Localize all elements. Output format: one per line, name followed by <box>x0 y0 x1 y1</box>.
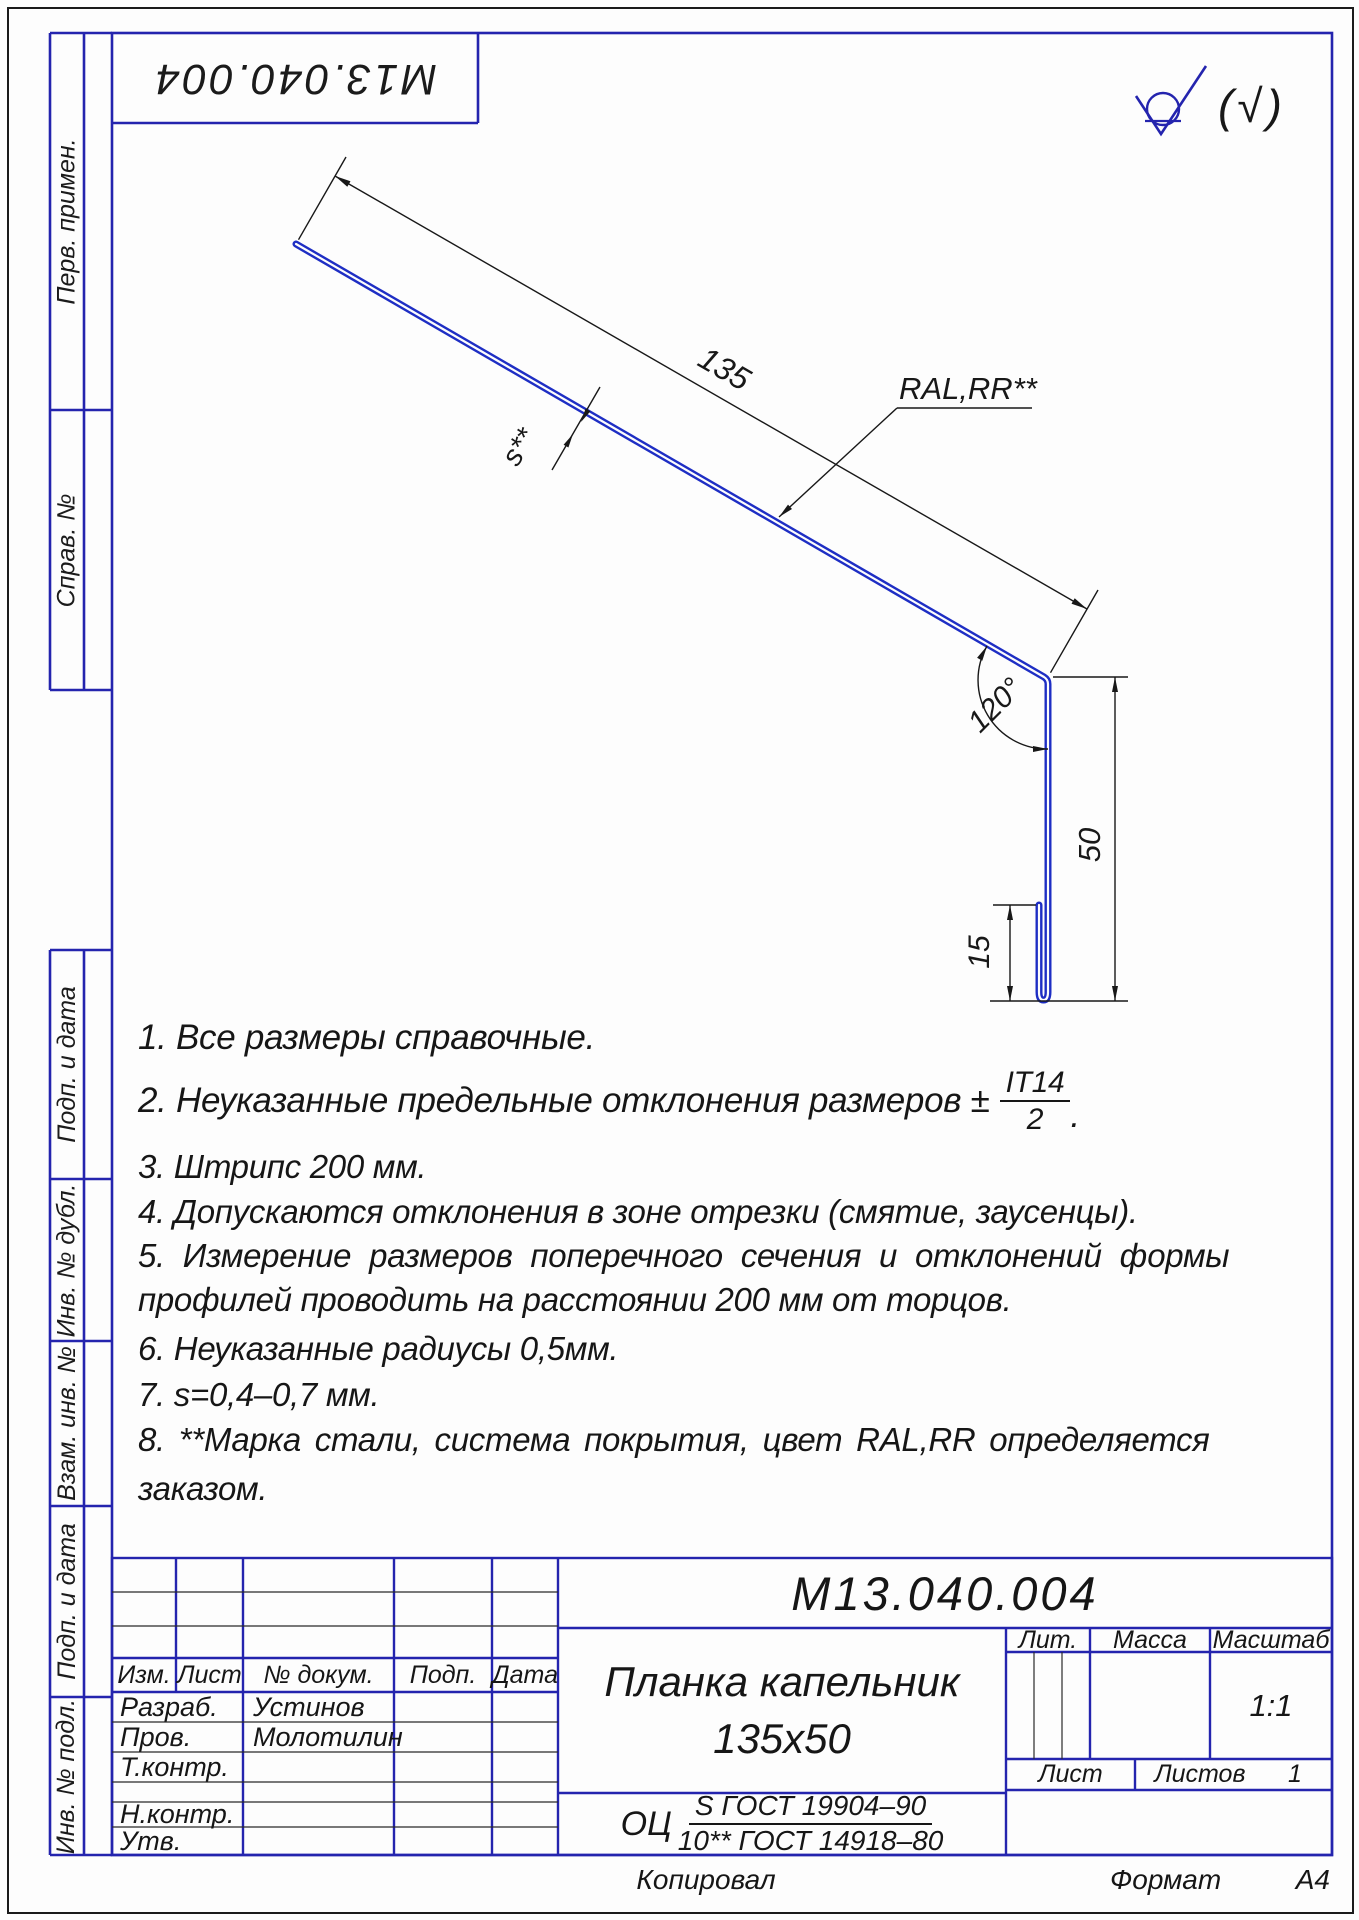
margin-label-podp-data-2: Подп. и дата <box>50 1506 84 1697</box>
tb-header-docnum: № докум. <box>243 1658 394 1692</box>
dimension-thickness-s: s** <box>496 387 600 471</box>
margin-label-sprav-no: Справ. № <box>50 410 84 690</box>
note-3: 3. Штрипс 200 мм. <box>138 1148 1098 1186</box>
part-profile <box>296 244 1048 1000</box>
tb-role-nkontr: Н.контр. <box>114 1802 242 1827</box>
tb-mass-label: Масса <box>1090 1628 1210 1652</box>
dim-thickness-text: s** <box>496 422 544 472</box>
dim-angle-text: 120° <box>962 672 1029 739</box>
tb-name-prov: Молотилин <box>247 1722 393 1752</box>
dim-hem-text: 15 <box>963 935 996 969</box>
tb-role-razrab: Разраб. <box>114 1692 242 1722</box>
margin-label-inv-podl: Инв. № подл. <box>50 1697 84 1855</box>
coating-leader: RAL,RR** <box>779 371 1038 517</box>
tb-role-prov: Пров. <box>114 1722 242 1752</box>
tb-header-izm: Изм. <box>112 1658 176 1692</box>
footer-copied: Копировал <box>560 1858 852 1902</box>
drawing-sheet: 135 s** RAL,RR** 120° 50 <box>0 0 1359 1920</box>
tb-scale-value: 1:1 <box>1210 1652 1332 1759</box>
dimension-angle-120: 120° <box>962 646 1048 752</box>
tb-header-list: Лист <box>176 1658 243 1692</box>
tb-name-razrab: Устинов <box>247 1692 393 1722</box>
footer-format: Формат А4 <box>1100 1858 1340 1902</box>
tb-lit-label: Лит. <box>1006 1628 1090 1652</box>
tb-part-name: Планка капельник 135х50 <box>558 1628 1006 1793</box>
tb-sheets-value: 1 <box>1270 1759 1320 1790</box>
note-1: 1. Все размеры справочные. <box>138 1018 1098 1058</box>
note-8-line1: 8. **Марка стали, система покрытия, цвет… <box>138 1421 1098 1459</box>
dimension-length-135: 135 <box>299 157 1099 673</box>
coating-label-text: RAL,RR** <box>899 371 1038 406</box>
note-2: 2. Неуказанные предельные отклонения раз… <box>138 1066 1098 1136</box>
note-7: 7. s=0,4–0,7 мм. <box>138 1376 1098 1414</box>
dimension-hem-15: 15 <box>963 905 1036 1001</box>
surface-finish-icon <box>1136 66 1206 134</box>
margin-label-vzam-inv: Взам. инв. № <box>50 1341 84 1506</box>
tb-role-utv: Утв. <box>114 1827 242 1855</box>
tb-role-tkontr: Т.контр. <box>114 1752 242 1782</box>
top-stamp-number: М13.040.004 <box>112 33 478 123</box>
tb-header-podp: Подп. <box>394 1658 492 1692</box>
tb-scale-label: Масштаб <box>1210 1628 1332 1652</box>
note-6: 6. Неуказанные радиусы 0,5мм. <box>138 1330 1098 1368</box>
margin-label-podp-data-1: Подп. и дата <box>50 950 84 1179</box>
tb-header-data: Дата <box>492 1658 558 1692</box>
note-2-fraction: IT14 2 <box>1000 1066 1071 1136</box>
tb-material: ОЦ S ГОСТ 19904–90 10** ГОСТ 14918–80 <box>558 1793 1006 1855</box>
surface-finish-bracket: (√) <box>1218 80 1286 132</box>
dim-height-text: 50 <box>1072 828 1107 862</box>
tb-sheet-label: Лист <box>1006 1759 1135 1790</box>
tb-designation: М13.040.004 <box>558 1558 1332 1628</box>
dim-length-text: 135 <box>692 340 756 398</box>
margin-label-perv-primen: Перв. примен. <box>50 33 84 410</box>
note-4: 4. Допускаются отклонения в зоне отрезки… <box>138 1193 1098 1231</box>
tb-sheets-label: Листов <box>1135 1759 1265 1790</box>
note-5-line1: 5. Измерение размеров поперечного сечени… <box>138 1237 1098 1275</box>
note-8-line2: заказом. <box>138 1470 1098 1508</box>
margin-label-inv-dubl: Инв. № дубл. <box>50 1179 84 1341</box>
note-5-line2: профилей проводить на расстоянии 200 мм … <box>138 1281 1098 1319</box>
